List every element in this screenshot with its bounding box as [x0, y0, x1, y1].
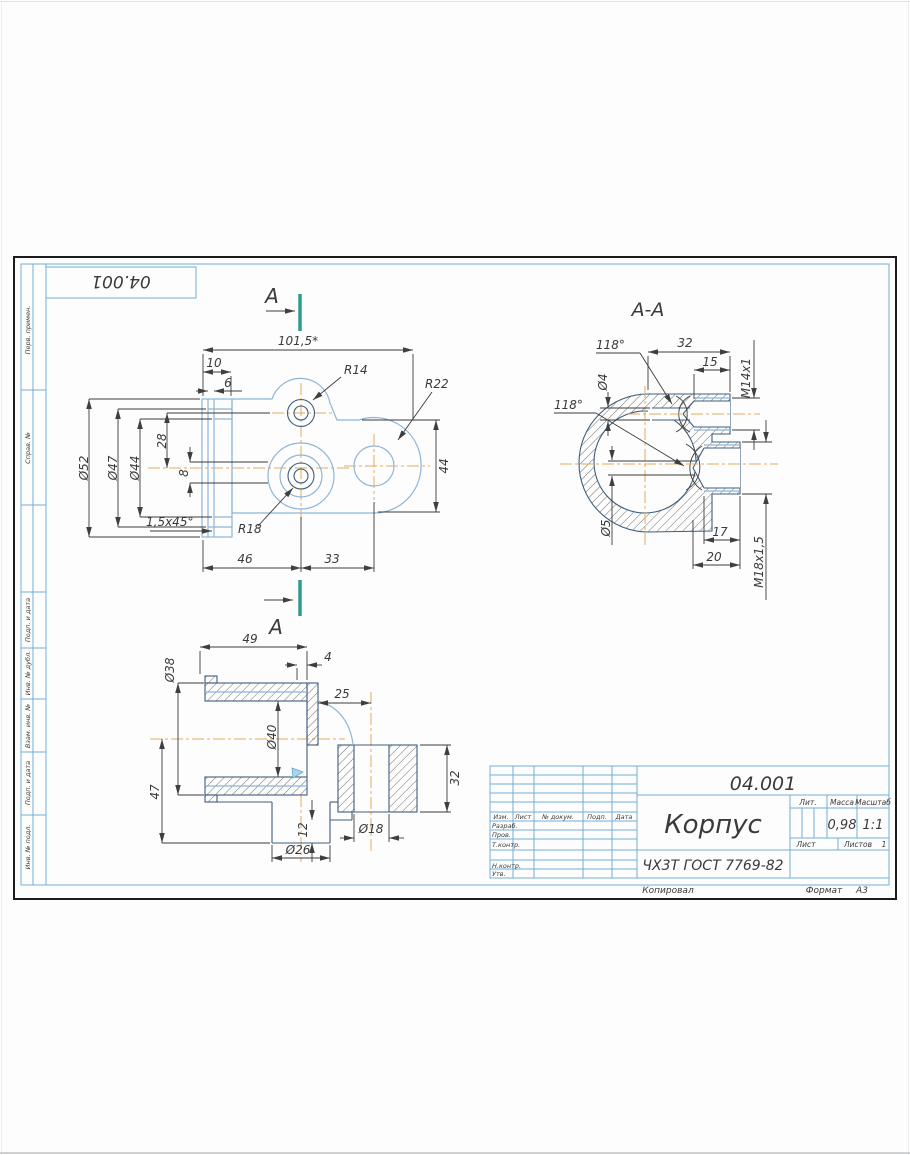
dim-label: 15 [702, 355, 717, 369]
section-letter: А [267, 615, 283, 639]
dim-label: Ø40 [265, 724, 279, 750]
dim-label: Ø4 [596, 373, 610, 391]
side-column-label: Справ. № [24, 432, 32, 464]
material-spec: ЧХ3Т ГОСТ 7769-82 [642, 858, 783, 874]
dim-label: 17 [712, 525, 728, 539]
dim-label: 28 [155, 433, 169, 449]
title-block: 04.001 Корпус ЧХ3Т ГОСТ 7769-82 Лит. Мас… [490, 766, 891, 896]
side-column-label: Перв. примен. [24, 306, 32, 355]
dim-label: 49 [242, 632, 257, 646]
dim-label: Ø47 [106, 455, 120, 481]
row-utv: Утв. [492, 870, 506, 878]
dim-label: 32 [448, 770, 462, 785]
drawing-page: 04.001 Перв. примен. Справ. № Подп. и да… [0, 0, 910, 1155]
section-title: А-А [630, 299, 665, 321]
drawing-sheet: 04.001 Перв. примен. Справ. № Подп. и да… [0, 0, 910, 1155]
side-column-label: Взам. инв. № [24, 704, 32, 748]
dim-label: 10 [206, 356, 222, 370]
litera-label: Лит. [798, 798, 816, 807]
section-letter: А [263, 284, 279, 308]
dim-label: Ø38 [163, 657, 177, 683]
dim-label: 118° [596, 338, 625, 352]
row-nkontr: Н.контр. [492, 862, 521, 870]
col-list: Лист [514, 813, 532, 821]
mass-label: Масса [830, 798, 854, 807]
dim-label: R22 [425, 377, 449, 391]
col-izm: Изм. [493, 813, 508, 821]
mass-value: 0,98 [828, 818, 857, 833]
footer-copied: Копировал [642, 886, 694, 896]
top-designation: 04.001 [91, 271, 150, 291]
dim-label: 33 [324, 552, 339, 566]
col-data: Дата [615, 813, 633, 821]
dim-label: R14 [344, 363, 368, 377]
dim-label: 20 [706, 550, 722, 564]
sheets-label: Листов [843, 840, 872, 849]
side-view: 49 Ø38 4 25 Ø40 47 12 Ø26 [148, 632, 462, 862]
section-view: А-А [554, 299, 778, 600]
footer-format-label: Формат [806, 886, 843, 896]
title-designation: 04.001 [730, 773, 796, 795]
dim-label: R18 [238, 522, 262, 536]
dim-label: 101,5* [278, 334, 318, 348]
scale-value: 1:1 [863, 818, 884, 833]
side-column-label: Подп. и дата [24, 761, 32, 805]
part-name: Корпус [664, 810, 762, 840]
row-prov: Пров. [492, 831, 511, 839]
plan-view: 101,5* 10 6 Ø52 Ø47 Ø44 28 [77, 284, 451, 639]
dim-label: Ø26 [285, 843, 311, 857]
footer-format-value: А3 [855, 886, 868, 896]
dim-label: Ø5 [599, 519, 613, 537]
row-razrab: Разраб. [492, 822, 518, 830]
row-tkontr: Т.контр. [492, 841, 520, 849]
dim-label: 1,5х45° [146, 515, 193, 529]
dim-label: 32 [677, 336, 692, 350]
col-podp: Подп. [587, 813, 607, 821]
dim-label: 47 [148, 784, 162, 800]
dim-label: 118° [554, 398, 583, 412]
dim-label: 12 [296, 822, 310, 837]
side-column-label: Подп. и дата [24, 598, 32, 642]
dim-label: 46 [237, 552, 253, 566]
sheet-label: Лист [795, 840, 816, 849]
dim-label: 44 [437, 458, 451, 473]
dim-label: Ø52 [77, 456, 91, 482]
dim-label: 8 [177, 469, 191, 477]
dim-label: 6 [224, 376, 232, 390]
dim-label: 4 [324, 650, 332, 664]
side-column-label: Инв. № подл. [24, 825, 32, 870]
side-column-label: Инв. № дубл. [24, 651, 32, 695]
dim-label: Ø44 [128, 456, 142, 482]
dim-label: Ø18 [358, 822, 384, 836]
dim-label: М14х1 [739, 358, 753, 398]
dim-label: М18х1,5 [752, 536, 766, 588]
dim-label: 25 [334, 687, 349, 701]
scale-label: Масштаб [855, 798, 891, 807]
col-dokum: № докум. [541, 813, 574, 821]
sheets-value: 1 [882, 840, 887, 849]
